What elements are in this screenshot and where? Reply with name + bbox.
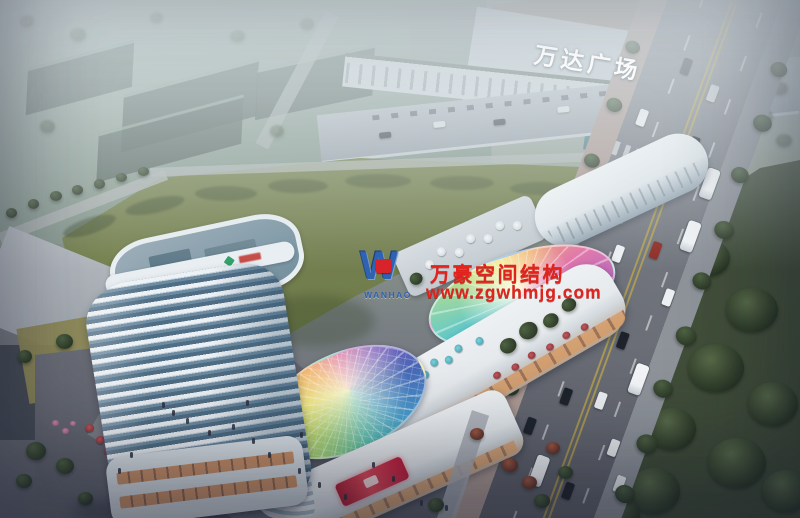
lawn-tree-shadow	[268, 179, 328, 193]
watermark-logo-square	[376, 259, 391, 273]
watermark-url: www.zgwhmjg.com	[426, 282, 602, 303]
lawn-tree-shadow	[345, 174, 411, 188]
lawn-tree-shadow	[195, 186, 257, 201]
aerial-rendering: 万达广场 W WANHAO 万豪空间结构 www.zgwhmjg.com	[0, 0, 800, 518]
lawn-tree-shadow	[430, 176, 494, 190]
watermark-logo-name: WANHAO	[356, 290, 420, 300]
watermark-logo: W WANHAO	[356, 250, 422, 306]
tower-logo-text	[239, 252, 262, 263]
watermark: W WANHAO 万豪空间结构 www.zgwhmjg.com	[356, 250, 606, 312]
